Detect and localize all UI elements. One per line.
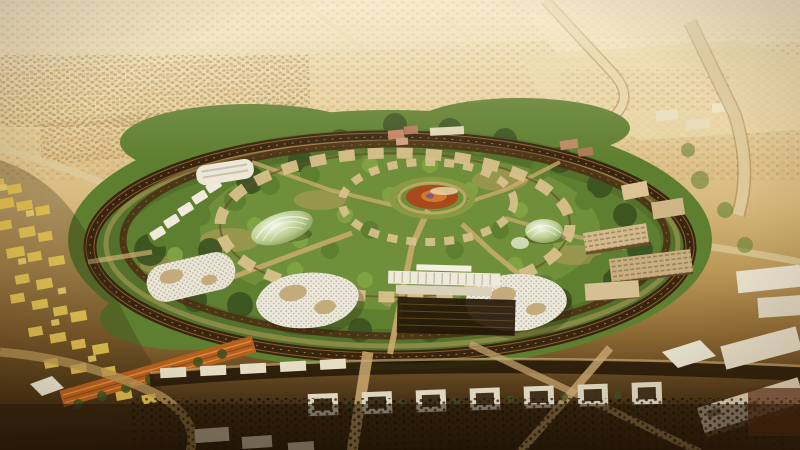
scene-canvas [0,0,800,450]
atmosphere [0,0,800,450]
aerial-render [0,0,800,450]
